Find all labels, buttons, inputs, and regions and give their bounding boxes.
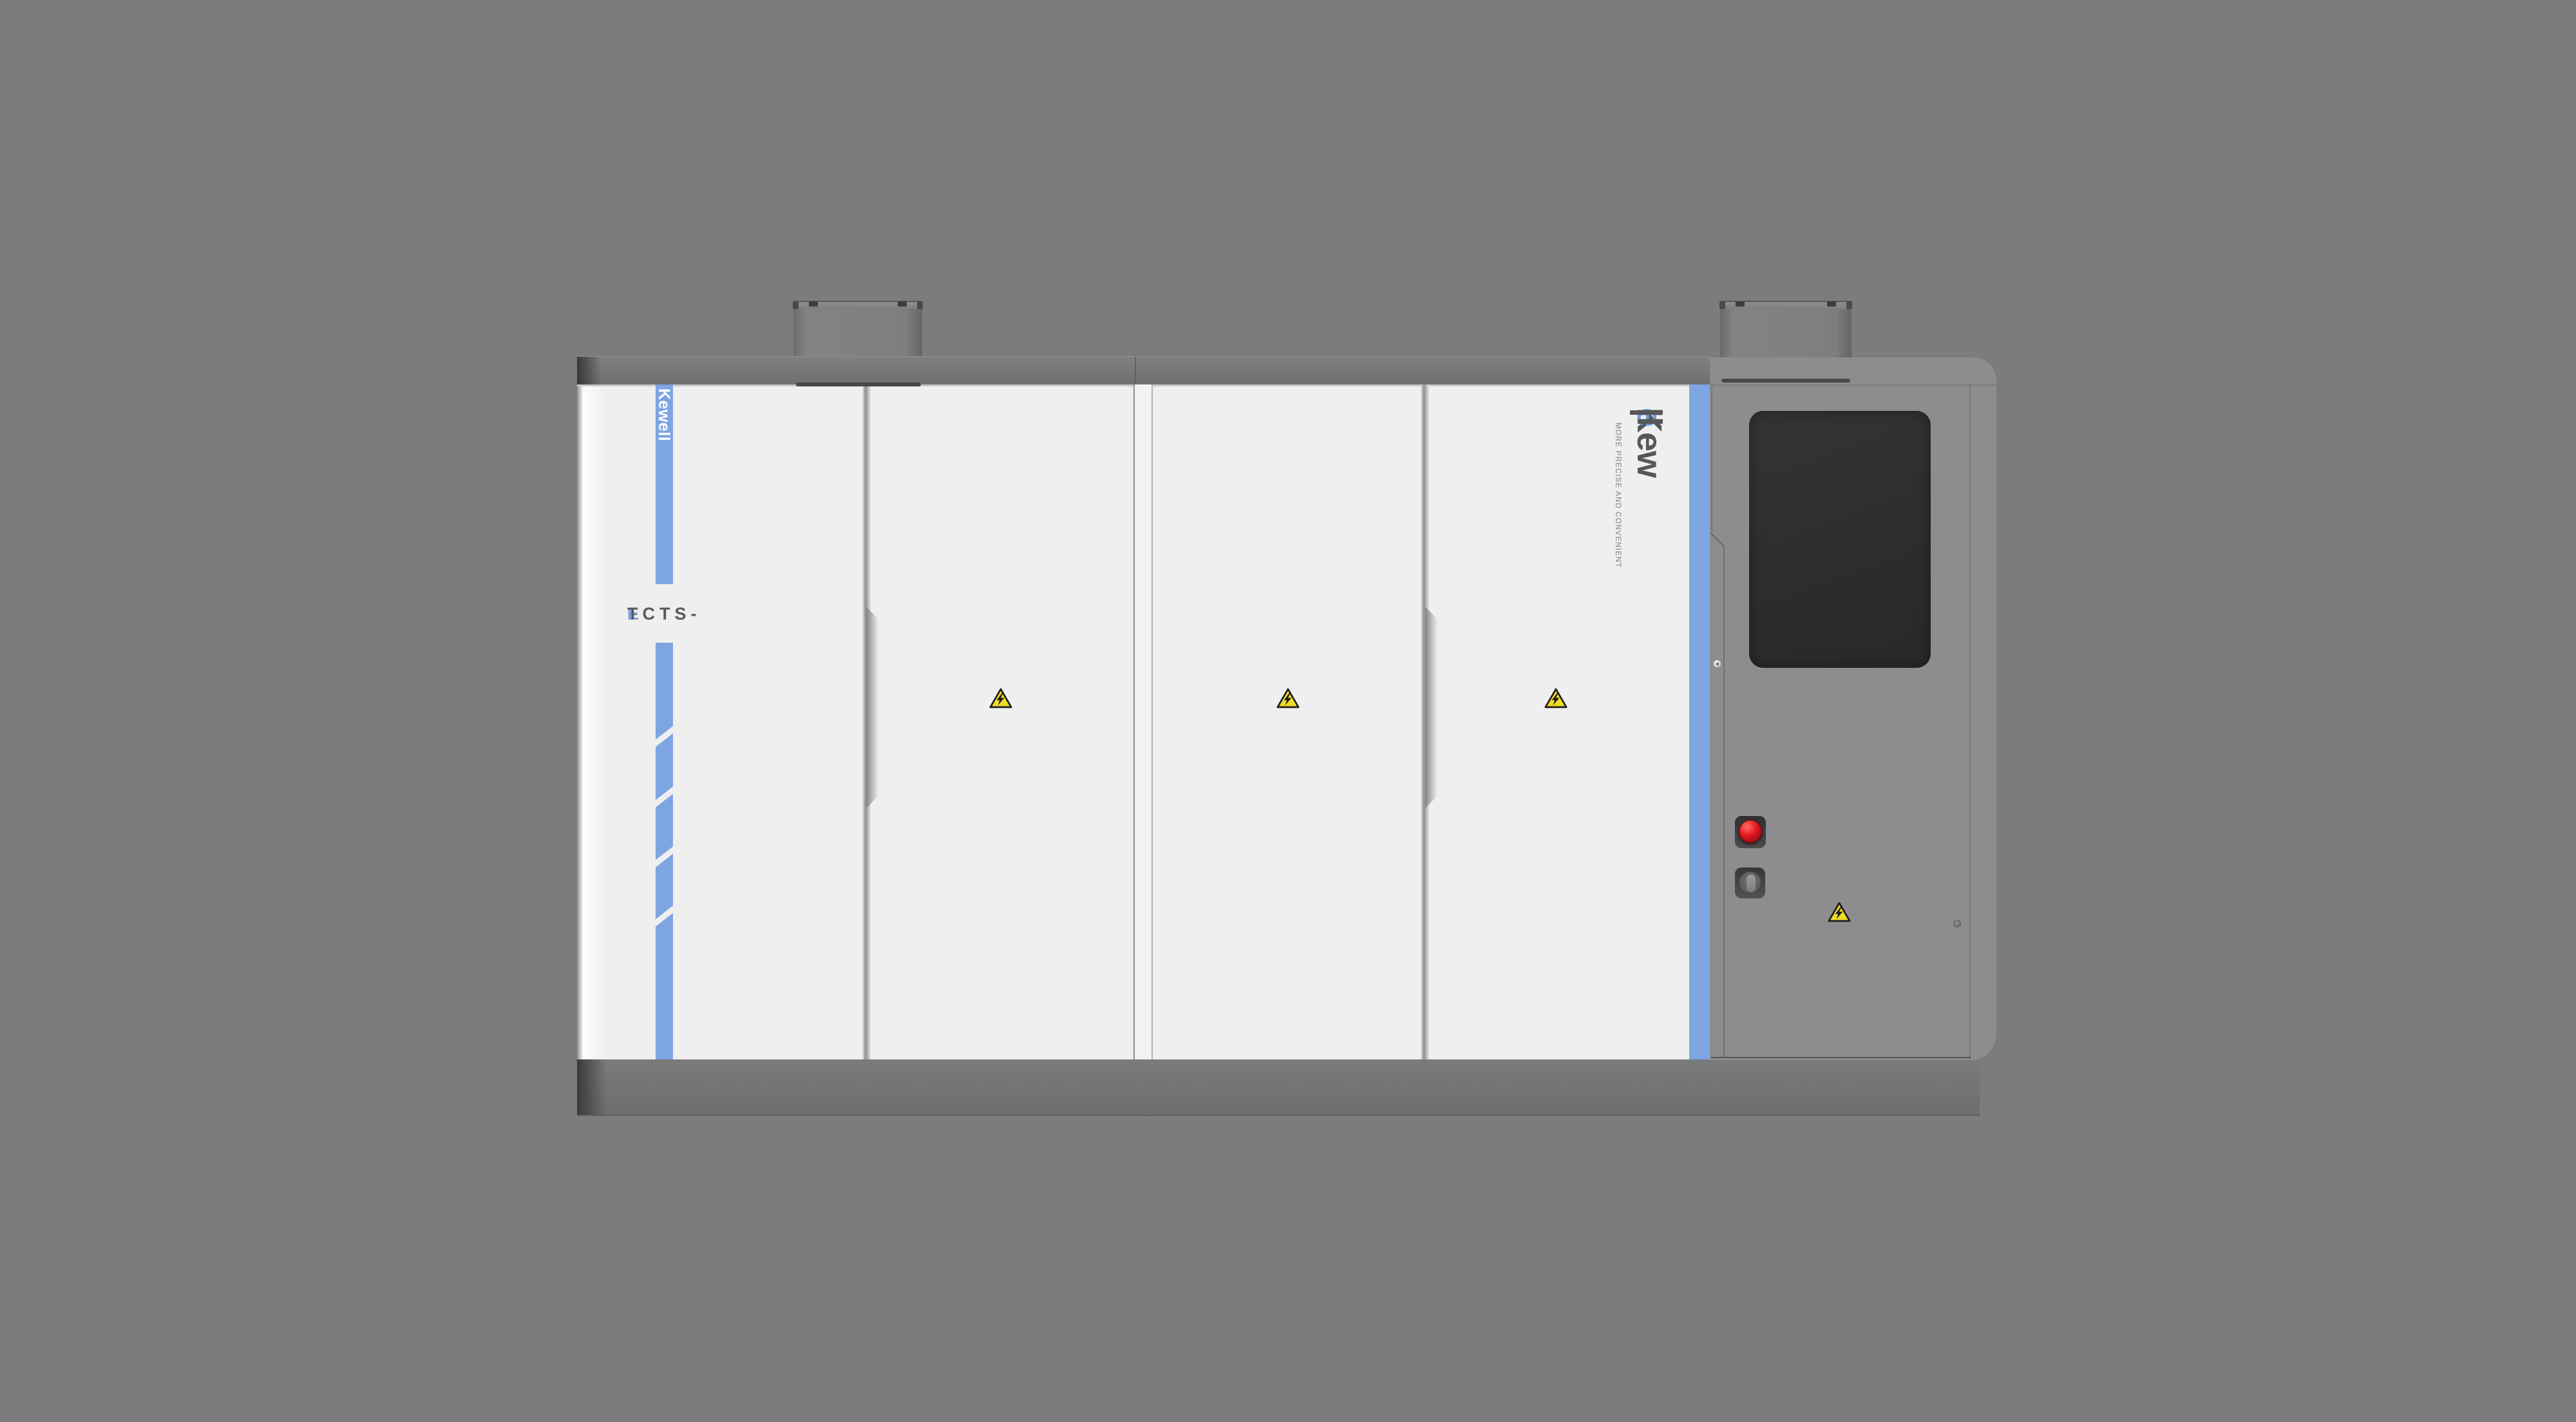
brand-stripe-left-main <box>656 643 673 1059</box>
stripe-slash <box>652 846 677 867</box>
duct-tab <box>809 301 818 307</box>
rail-seam <box>1135 357 1136 384</box>
door-seam-2 <box>1133 384 1153 1059</box>
emergency-stop-bezel <box>1735 816 1766 848</box>
stripe-slash <box>652 905 677 926</box>
key-switch-recess <box>1739 871 1761 894</box>
panel-door-outline <box>1711 386 1712 533</box>
product-render-stage: Kewell FCTS-ET |Kewell MORE PRECISE AND … <box>0 0 2576 1422</box>
emergency-stop-button[interactable] <box>1739 820 1762 843</box>
control-panel-section <box>1710 357 1996 1060</box>
panel-door-outline <box>1723 545 1725 1057</box>
key-switch[interactable] <box>1747 875 1756 892</box>
stripe-slash <box>652 786 677 807</box>
duct-rim <box>793 301 922 309</box>
model-label-suffix: T <box>627 604 643 624</box>
touchscreen-display[interactable] <box>1749 411 1931 668</box>
door-handle-left[interactable] <box>866 607 879 808</box>
logo-tagline: MORE PRECISE AND CONVENIENT <box>1614 422 1622 551</box>
duct-end-cap <box>917 301 923 309</box>
panel-door-outline-chamfer <box>1710 533 1724 546</box>
plinth-left-cap <box>577 1059 607 1115</box>
base-plinth <box>577 1059 1980 1116</box>
rail-left-cap <box>577 357 601 384</box>
duct-tab <box>1827 301 1836 307</box>
duct-tab <box>1736 301 1745 307</box>
panel-door-outline-bottom <box>1711 1057 1971 1058</box>
door-handle-right[interactable] <box>1425 607 1438 808</box>
logo-part2: ll <box>1629 408 1669 426</box>
duct-end-cap <box>1846 301 1852 309</box>
brand-stripe-vertical-label: Kewell <box>654 388 673 459</box>
high-voltage-warning-icon <box>989 688 1012 709</box>
panel-screw <box>1953 920 1961 927</box>
duct-end-cap <box>793 301 799 309</box>
panel-screw <box>1713 659 1721 668</box>
key-switch-bezel <box>1735 867 1765 898</box>
top-frame-rail <box>577 356 1710 384</box>
panel-right-seam <box>1969 384 1971 1060</box>
cabinet-front: Kewell FCTS-ET <box>577 384 1710 1059</box>
stripe-slash <box>652 726 677 746</box>
brand-stripe-right <box>1689 384 1710 1059</box>
high-voltage-warning-icon <box>1828 902 1851 923</box>
duct-end-cap <box>1719 301 1725 309</box>
duct-rim <box>1720 301 1851 309</box>
cabinet-left-edge <box>577 384 605 1059</box>
duct-tab <box>898 301 907 307</box>
duct-slot-shadow <box>796 383 921 386</box>
high-voltage-warning-icon <box>1544 688 1567 709</box>
duct-slot-shadow <box>1721 379 1850 383</box>
high-voltage-warning-icon <box>1276 688 1300 709</box>
panel-top-seam <box>1710 384 1996 386</box>
